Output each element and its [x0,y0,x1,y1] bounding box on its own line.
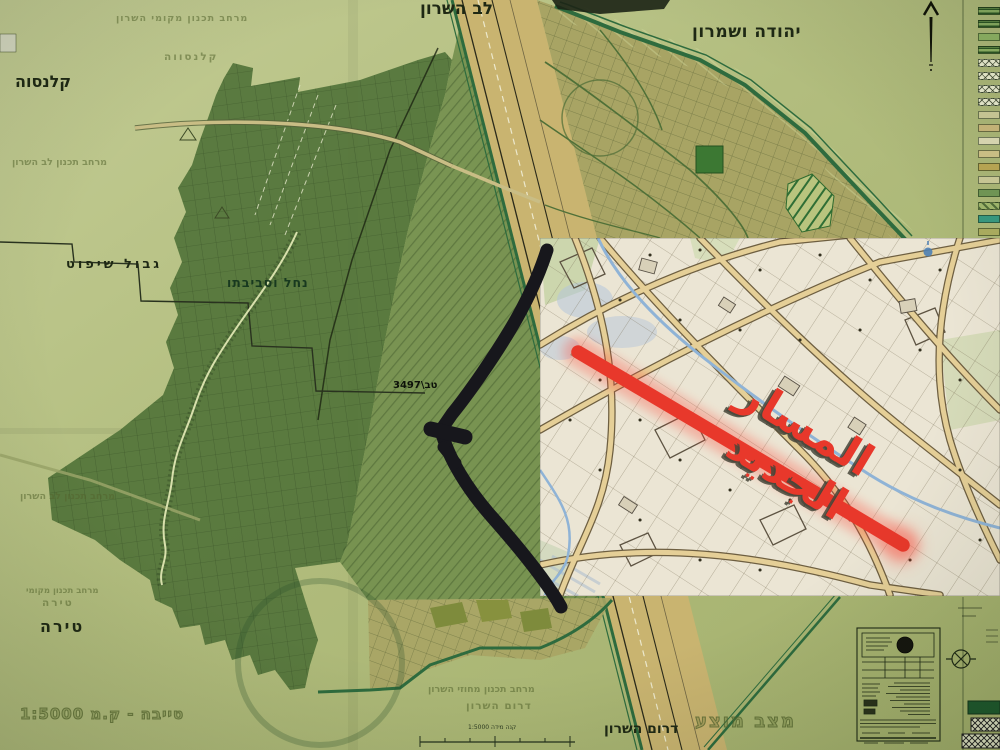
legend-swatch [978,98,1000,106]
legend-swatch [978,124,1000,132]
legend-swatch [978,20,1000,28]
legend-swatch [978,46,1000,54]
legend-swatch [978,33,1000,41]
watermark-planning-area-1: מרחב תכנון מקומי השרון [116,14,248,24]
legend-swatch [978,215,1000,223]
legend-swatch [978,72,1000,80]
watermark-tira: טירה [42,598,74,609]
watermark-planning-area-4: מרחב תכנון מקומי [26,587,99,596]
watermark-planning-area-5: מרחב תכנון מחוזי השרון [428,685,535,695]
legend-strip [976,2,1000,236]
label-nahal-usvivato: נחל וסביבתו [227,277,309,290]
legend-swatch [978,7,1000,15]
label-plan-number: טב\3497 [393,381,437,391]
label-scale-note: טייבה - ק.מ 1:5000 [20,707,184,722]
label-lev-hasharon: לב השרון [420,1,493,18]
legend-swatch [978,150,1000,158]
watermark-qalansawe: קלנסווה [164,52,218,63]
label-tira: טירה [40,619,84,635]
legend-swatch [978,202,1000,210]
watermark-planning-area-2: מרחב תכנון לב השרון [12,158,107,168]
legend-swatch [978,85,1000,93]
label-gvul-shiput: גבול שיפוט [66,258,162,271]
legend-swatch [978,176,1000,184]
label-qalansawe: קלנסוה [15,74,71,90]
legend-swatch [978,137,1000,145]
label-drom-hasharon: דרום השרון [604,722,678,736]
watermark-planning-area-3: מרחב תכנון לב השרון [20,492,115,502]
label-scale-caption: קנה מידה 1:5000 [468,725,516,731]
scanned-plan-map: לב השרון יהודה ושמרון קלנסוה גבול שיפוט … [0,0,1000,750]
photo-vignette [0,0,1000,750]
watermark-matzav: מצב מוצע [695,713,796,731]
legend-swatch [978,228,1000,236]
label-yehuda-veshomron: יהודה ושמרון [692,24,801,41]
legend-swatch [978,111,1000,119]
legend-swatch [978,59,1000,67]
legend-swatch [978,189,1000,197]
watermark-drom-hasharon: דרום השרון [466,701,532,712]
map-canvas [0,0,1000,750]
legend-swatch [978,163,1000,171]
